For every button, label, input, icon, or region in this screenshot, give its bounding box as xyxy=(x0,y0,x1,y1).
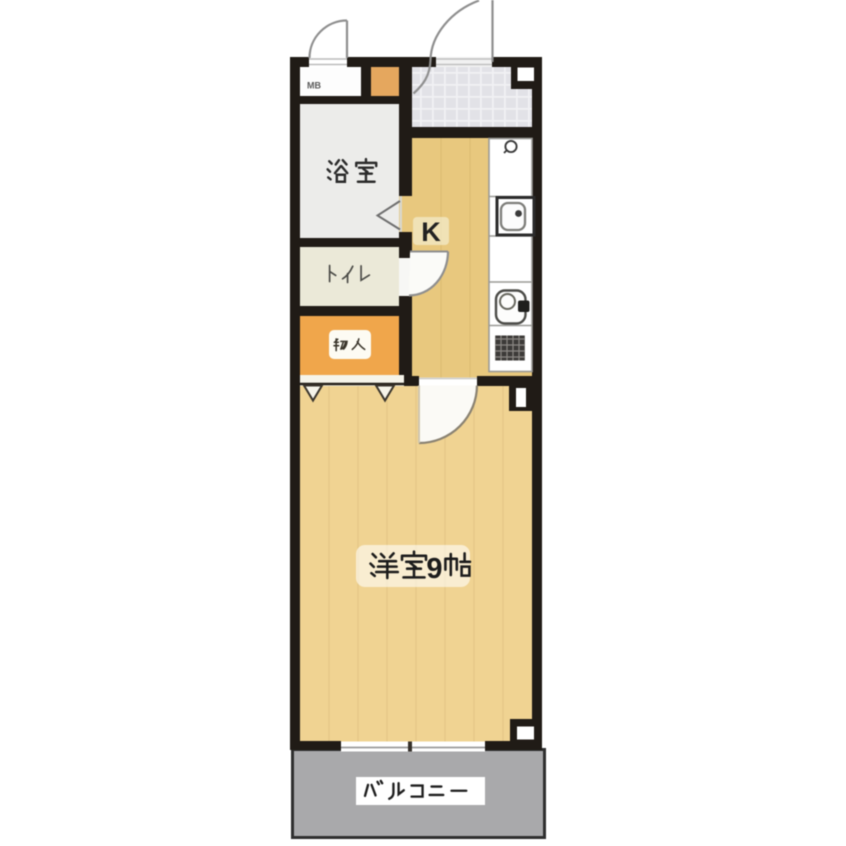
svg-text:MB: MB xyxy=(307,81,321,91)
svg-text:K: K xyxy=(421,217,441,247)
svg-text:9: 9 xyxy=(426,553,442,585)
